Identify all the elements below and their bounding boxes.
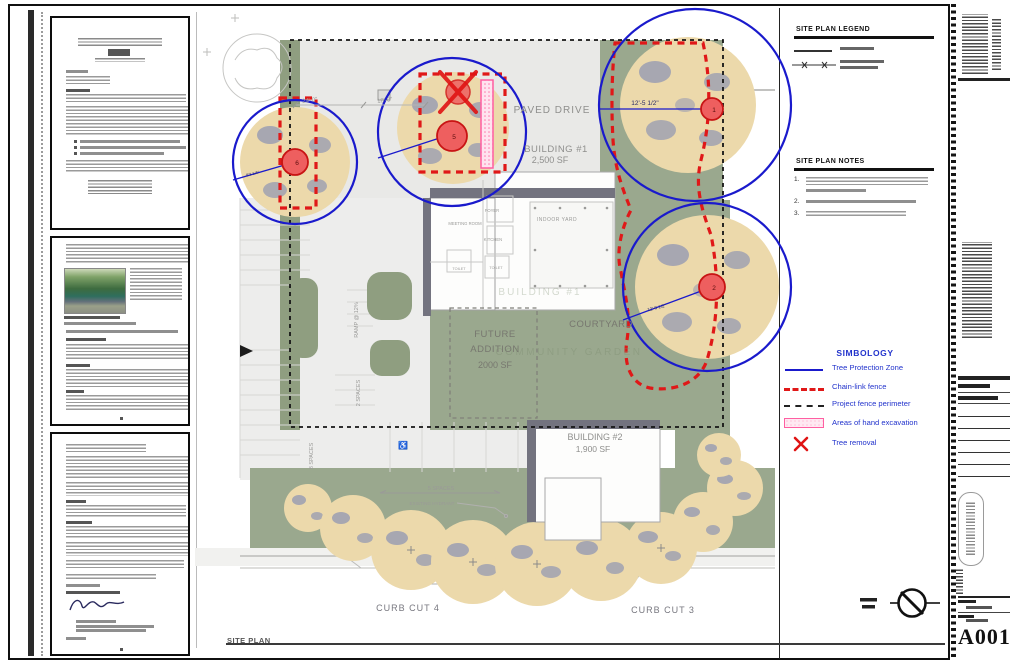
cc-line-placeholder: [76, 629, 146, 632]
curb-cut-4-label: CURB CUT 4: [376, 603, 440, 613]
closing-paragraph-placeholder: [66, 160, 188, 172]
titleblock-field-placeholder: [966, 619, 988, 622]
title-block: A001: [948, 4, 1013, 660]
letter-paragraph-placeholder: [66, 542, 188, 556]
company-line-placeholder: [66, 591, 120, 594]
titleblock-field-placeholder: [958, 396, 998, 400]
firm-info-vertical-text: [992, 18, 1001, 70]
tpz-swatch: [785, 369, 823, 371]
existing-hydrant-label: EXISTING HYDRANT: [410, 501, 455, 506]
foyer-label: FOYER: [485, 208, 499, 213]
simbology-label: Project fence perimeter: [832, 399, 911, 408]
body-paragraph-placeholder: [66, 106, 188, 136]
toilet-label: TOILET: [452, 267, 466, 271]
report-paragraph-placeholder: [66, 369, 188, 387]
letter-heading-placeholder: [66, 521, 92, 524]
photo-side-text-placeholder: [130, 268, 182, 302]
note-number: 1.: [794, 176, 799, 183]
drawing-sheet: ♿: [0, 0, 1016, 670]
legend-notes-column: SITE PLAN LEGEND SITE PLAN NOTES 1. 2. 3…: [779, 8, 948, 659]
photo-caption-placeholder: [64, 316, 120, 319]
site-plan-drawing: ♿: [195, 10, 775, 640]
note-text-placeholder: [806, 200, 916, 203]
site-photo: [64, 268, 126, 314]
tree6-tag: 6: [295, 160, 299, 167]
letter-paragraph-placeholder: [66, 526, 188, 538]
titleblock-field-placeholder: [966, 606, 992, 609]
page-number-mark: [120, 648, 123, 651]
revision-row-rule: [958, 440, 1010, 441]
building2-area-label: 1,900 SF: [576, 444, 611, 454]
spaces2-label: 2 SPACES: [356, 379, 362, 406]
site-plan-notes-title: SITE PLAN NOTES: [796, 158, 865, 165]
simbology-title: SIMBOLOGY: [805, 348, 925, 358]
report-paragraph-placeholder: [66, 344, 188, 360]
letter-paragraph-placeholder: [66, 574, 156, 580]
legend-label-placeholder: [840, 47, 874, 50]
titleblock-rule: [958, 392, 1010, 393]
building1-area-label: 2,500 SF: [532, 155, 569, 165]
project-north-symbol: [860, 582, 946, 626]
attached-report-page: [50, 236, 190, 426]
attached-letter-page-1: [50, 16, 190, 230]
meeting-room-label: MEETING ROOM: [448, 221, 482, 226]
note-text-placeholder: [806, 177, 928, 187]
bullet-line-placeholder: [80, 146, 186, 149]
tree1-tag: 1: [712, 107, 716, 114]
revision-row-rule: [958, 428, 1010, 429]
kitchen-label: KITCHEN: [484, 237, 502, 242]
firm-info-vertical-text: [962, 14, 988, 74]
bullet-dot: [74, 140, 77, 143]
paved-drive-label: PAVED DRIVE: [514, 105, 591, 116]
address-block-placeholder: [66, 76, 110, 85]
tree-removal-x-icon: [792, 436, 810, 452]
bullet-dot: [74, 152, 77, 155]
letter-paragraph-placeholder: [66, 505, 186, 517]
community-garden-ghost-label: COMMUNITY GARDEN: [495, 347, 642, 358]
tree5-tag: 5: [452, 134, 456, 141]
ramp-label: RAMP @ 12%: [354, 302, 360, 338]
report-paragraph-placeholder: [66, 395, 188, 411]
legend-label-placeholder: [840, 60, 884, 63]
building1-roof-band: [430, 188, 615, 198]
date-line-placeholder: [66, 70, 88, 73]
curb-cut-3-label: CURB CUT 3: [631, 605, 695, 615]
titleblock-rule: [958, 78, 1010, 81]
letterhead-logo: [108, 49, 130, 56]
photo-caption-line2: [64, 322, 136, 325]
signoff-line-placeholder: [66, 584, 100, 587]
building1-label: BUILDING #1: [524, 144, 588, 155]
sketch-tree: [203, 14, 291, 102]
letter-heading-placeholder: [66, 500, 86, 503]
bullet-line-placeholder: [80, 152, 164, 155]
indoor-yard-label: INDOOR YARD: [537, 217, 577, 223]
letterhead-placeholder: [78, 38, 162, 47]
letter-paragraph-placeholder: [66, 560, 184, 570]
simbology-label: Chain-link fence: [832, 382, 886, 391]
subject-text-placeholder: [66, 94, 186, 102]
titleblock-field-placeholder: [958, 615, 974, 618]
revision-row-rule: [958, 476, 1010, 477]
titleblock-field-placeholder: [958, 600, 976, 603]
page-number-mark: [120, 417, 123, 420]
letter-header-placeholder: [66, 444, 146, 452]
titleblock-rule: [958, 376, 1010, 380]
note-text-placeholder: [806, 189, 866, 192]
accessible-parking-symbol: ♿: [398, 440, 408, 450]
note-number: 3.: [794, 210, 799, 217]
existing-fence-swatch: [794, 50, 832, 52]
revision-row-rule: [958, 416, 1010, 417]
revision-cloud-stamp: [958, 492, 984, 566]
cc-line-placeholder: [76, 620, 116, 623]
report-paragraph-placeholder: [66, 244, 188, 264]
excavation-swatch: [784, 418, 824, 428]
tree2-tag: 2: [712, 285, 716, 292]
tree1-radius-dim: 12'-5 1/2": [631, 100, 659, 107]
note-text-placeholder: [806, 211, 906, 218]
site-plan-legend-title: SITE PLAN LEGEND: [796, 26, 870, 33]
subject-label-placeholder: [66, 89, 90, 92]
revision-cloud-edge: [41, 12, 43, 656]
simbology-label: Areas of hand excavation: [832, 418, 918, 427]
sheet-number: A001: [958, 624, 1011, 650]
footer-block-placeholder: [88, 180, 152, 194]
simbology-label: Tree Protection Zone: [832, 363, 903, 372]
perimeter-swatch: [784, 405, 824, 407]
hand-excavation-area: [481, 80, 493, 168]
building1-ghost-label: BUILDING #1: [498, 287, 581, 298]
titleblock-rule: [958, 612, 1010, 613]
fence-x-swatch: [792, 60, 836, 70]
legend-title-rule: [794, 36, 934, 39]
binding-edge-bar: [28, 10, 34, 656]
tree-canopy: [697, 433, 741, 477]
courtyard-label: COURTYARD: [569, 319, 633, 330]
legend-label-placeholder: [840, 66, 878, 69]
stamp-caption-vertical-text: [956, 568, 963, 594]
chain-link-swatch: [784, 388, 824, 391]
spaces8-label: 8 SPACES: [309, 442, 315, 469]
revision-row-rule: [958, 452, 1010, 453]
spaces5-label: 5 SPACES: [428, 486, 455, 492]
notes-title-rule: [794, 168, 934, 171]
project-address-vertical-text: [962, 242, 992, 338]
report-heading-placeholder: [66, 364, 90, 367]
report-line-placeholder: [66, 330, 178, 333]
simbology-label: Tree removal: [832, 438, 876, 447]
letterhead-address-placeholder: [95, 58, 145, 62]
letter-paragraph-placeholder: [66, 456, 188, 478]
report-heading-placeholder: [66, 338, 106, 341]
toilet-label: TOILET: [489, 266, 503, 270]
revision-row-rule: [958, 464, 1010, 465]
bullet-dot: [74, 146, 77, 149]
report-heading-placeholder: [66, 390, 84, 393]
letter-paragraph-placeholder: [66, 482, 188, 496]
titleblock-rule: [958, 596, 1010, 598]
titleblock-field-placeholder: [958, 384, 990, 388]
signature: [68, 596, 132, 616]
building2-label: BUILDING #2: [567, 432, 622, 442]
cc-line-placeholder: [76, 625, 154, 628]
bullet-line-placeholder: [80, 140, 180, 143]
enclosure-line-placeholder: [66, 637, 86, 640]
note-number: 2.: [794, 198, 799, 205]
perforation-strip: [951, 4, 956, 660]
future-label-1: FUTURE: [474, 329, 516, 340]
title-underline: [226, 643, 945, 645]
attached-letter-page-2: [50, 432, 190, 656]
titleblock-rule: [958, 403, 1010, 404]
future-label-3: 2000 SF: [478, 360, 513, 370]
